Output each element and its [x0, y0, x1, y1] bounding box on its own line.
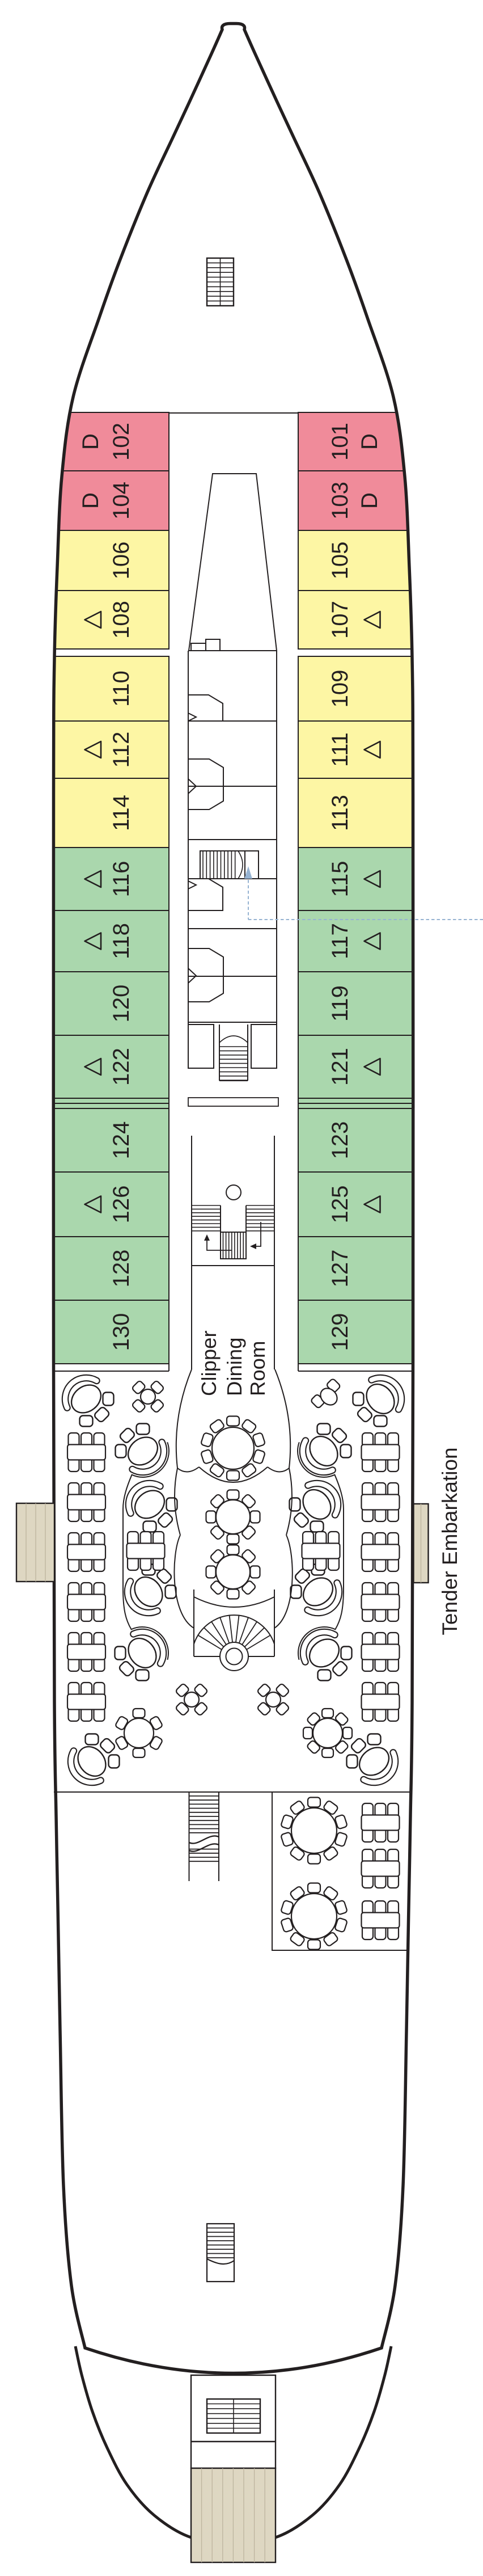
- svg-text:120: 120: [109, 985, 134, 1023]
- svg-text:111: 111: [328, 732, 353, 767]
- svg-text:118: 118: [109, 923, 134, 959]
- svg-text:130: 130: [109, 1313, 134, 1351]
- svg-text:D: D: [357, 433, 382, 450]
- svg-text:105: 105: [328, 542, 353, 580]
- svg-text:126: 126: [109, 1186, 134, 1224]
- svg-text:125: 125: [328, 1186, 353, 1224]
- svg-text:108: 108: [109, 601, 134, 639]
- svg-text:D: D: [357, 492, 382, 509]
- svg-text:102: 102: [109, 423, 134, 461]
- svg-text:124: 124: [109, 1122, 134, 1160]
- svg-text:127: 127: [328, 1250, 353, 1288]
- svg-text:121: 121: [328, 1048, 353, 1086]
- svg-text:Dining: Dining: [223, 1338, 246, 1396]
- svg-text:113: 113: [328, 795, 353, 831]
- svg-text:117: 117: [328, 923, 353, 959]
- svg-text:119: 119: [328, 985, 353, 1022]
- svg-text:129: 129: [328, 1313, 353, 1351]
- svg-text:104: 104: [109, 482, 134, 520]
- svg-text:Room: Room: [246, 1341, 269, 1396]
- svg-text:D: D: [78, 433, 103, 450]
- svg-text:109: 109: [328, 670, 353, 708]
- svg-text:114: 114: [109, 795, 134, 831]
- svg-text:122: 122: [109, 1048, 134, 1086]
- svg-text:Tender Embarkation: Tender Embarkation: [438, 1447, 461, 1635]
- svg-text:123: 123: [328, 1122, 353, 1160]
- svg-text:Clipper: Clipper: [197, 1330, 221, 1396]
- svg-text:106: 106: [109, 542, 134, 580]
- svg-text:D: D: [78, 492, 103, 509]
- svg-text:101: 101: [328, 423, 353, 461]
- svg-text:115: 115: [328, 861, 353, 897]
- svg-text:103: 103: [328, 482, 353, 520]
- svg-text:110: 110: [109, 671, 134, 707]
- svg-text:107: 107: [328, 601, 353, 639]
- svg-text:116: 116: [109, 861, 134, 897]
- svg-text:128: 128: [109, 1250, 134, 1288]
- svg-text:112: 112: [109, 732, 134, 768]
